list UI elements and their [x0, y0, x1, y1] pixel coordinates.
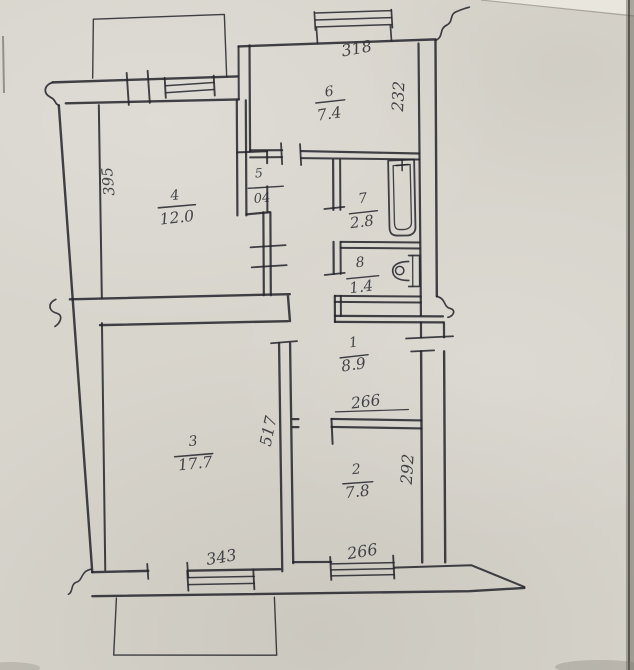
room-hall-number: 1 [348, 334, 359, 351]
paper-left-edge-mark [3, 36, 4, 93]
room-room4-area: 12.0 [159, 207, 195, 229]
room-room2-number: 2 [350, 461, 362, 478]
room-closet-area: 04 [253, 191, 271, 207]
wall-bottom-outer-left [92, 569, 280, 572]
windows [126, 10, 395, 591]
wall-hall-top [335, 315, 443, 323]
room-wc-area: 1.4 [348, 276, 374, 297]
door-room4 [251, 245, 287, 267]
window-room4 [166, 83, 214, 93]
bathtub-tap [396, 160, 408, 171]
wall-kitchen-top [238, 39, 435, 46]
wall-hall-room2 [292, 418, 421, 429]
room-kitchen-area: 7.4 [316, 103, 343, 124]
bathtub-inner [393, 165, 411, 230]
scanned-paper-background: 6 7.4 318 232 4 12.0 395 5 04 7 2.8 8 1.… [0, 0, 634, 670]
wall-bath-wc-divider [341, 241, 420, 248]
paper-bottom-left-smudge [0, 662, 40, 670]
door-wc [325, 273, 345, 275]
wall-bottom-right-taper [394, 565, 524, 588]
wall-wc-bottom [335, 295, 421, 302]
window-living-jambs [187, 569, 254, 590]
door-living [271, 341, 297, 343]
dim-room2-width: 266 [345, 539, 379, 563]
break-top-left [45, 82, 59, 105]
wall-room4-right-b [246, 100, 247, 215]
paper-bottom-right-smudge [555, 660, 634, 670]
dim-living-depth: 517 [256, 413, 281, 448]
wall-hall-living [279, 343, 293, 571]
break-left-mid [50, 299, 61, 326]
room-closet-number: 5 [254, 165, 263, 181]
wall-bath-left-b [340, 160, 341, 316]
wall-room4-right-a [237, 100, 238, 215]
wall-top-band-inner [66, 99, 239, 103]
toilet-drain [395, 266, 403, 274]
toilet-icon [393, 255, 420, 286]
upper-balcony-outline [92, 14, 226, 78]
wall-kitchen-bottom-outer [250, 149, 419, 154]
paper-artifacts [0, 0, 634, 670]
break-top-right [435, 7, 469, 40]
window-living [188, 576, 254, 584]
wall-kitchen-left [250, 45, 251, 151]
room-living-number: 3 [188, 433, 199, 450]
wall-bottom-outer-line [92, 588, 524, 596]
dim-kitchen-depth: 232 [388, 81, 408, 113]
fraction-bar-kitchen [316, 100, 345, 103]
wall-jog [246, 212, 269, 214]
wall-entrance-jamb-upper [421, 322, 444, 337]
dim-kitchen-width: 318 [340, 36, 373, 60]
window-kitchen [315, 11, 391, 27]
door-room2-leaf [331, 419, 332, 444]
door-entrance [406, 336, 453, 351]
fraction-bar-closet [248, 186, 283, 188]
wall-top-band-outer [53, 76, 238, 82]
room-living-area: 17.7 [177, 453, 213, 475]
lower-balcony-outline [113, 597, 276, 656]
balcony-door-jambs-bottom [147, 563, 188, 579]
toilet-tank [409, 255, 420, 286]
door-kitchen [281, 143, 301, 165]
dim-room4-depth: 395 [98, 166, 119, 196]
break-bottom-left [68, 569, 91, 594]
walls [52, 39, 524, 596]
break-symbols [45, 7, 472, 594]
wall-left-inner-lower [102, 323, 105, 570]
room-hall-area: 8.9 [340, 354, 367, 375]
dim-room2-depth: 292 [397, 453, 418, 486]
floor-plan-canvas: 6 7.4 318 232 4 12.0 395 5 04 7 2.8 8 1.… [0, 0, 634, 670]
break-right-mid [437, 296, 454, 317]
room-wc-number: 8 [355, 254, 366, 271]
dim-hall-width: 266 [349, 391, 382, 413]
floor-plan-drawing: 6 7.4 318 232 4 12.0 395 5 04 7 2.8 8 1.… [45, 7, 525, 656]
room-bath-number: 7 [357, 190, 368, 207]
wall-left-outer [59, 105, 92, 572]
room-room2-area: 7.8 [344, 482, 371, 503]
room-bath-area: 2.8 [348, 211, 375, 232]
wall-mid-band [70, 294, 290, 325]
room-room4-number: 4 [169, 187, 181, 204]
wall-left-inner-upper [99, 105, 102, 298]
balcony-door-jambs-top [127, 71, 150, 105]
window-room2 [331, 563, 394, 576]
wall-right-outer-upper [435, 40, 436, 296]
room-kitchen-number: 6 [324, 83, 335, 100]
wall-bath-left-a [333, 160, 335, 322]
wall-right-lower [421, 351, 445, 562]
bathtub-icon [388, 159, 415, 235]
dim-living-width: 343 [205, 545, 238, 569]
